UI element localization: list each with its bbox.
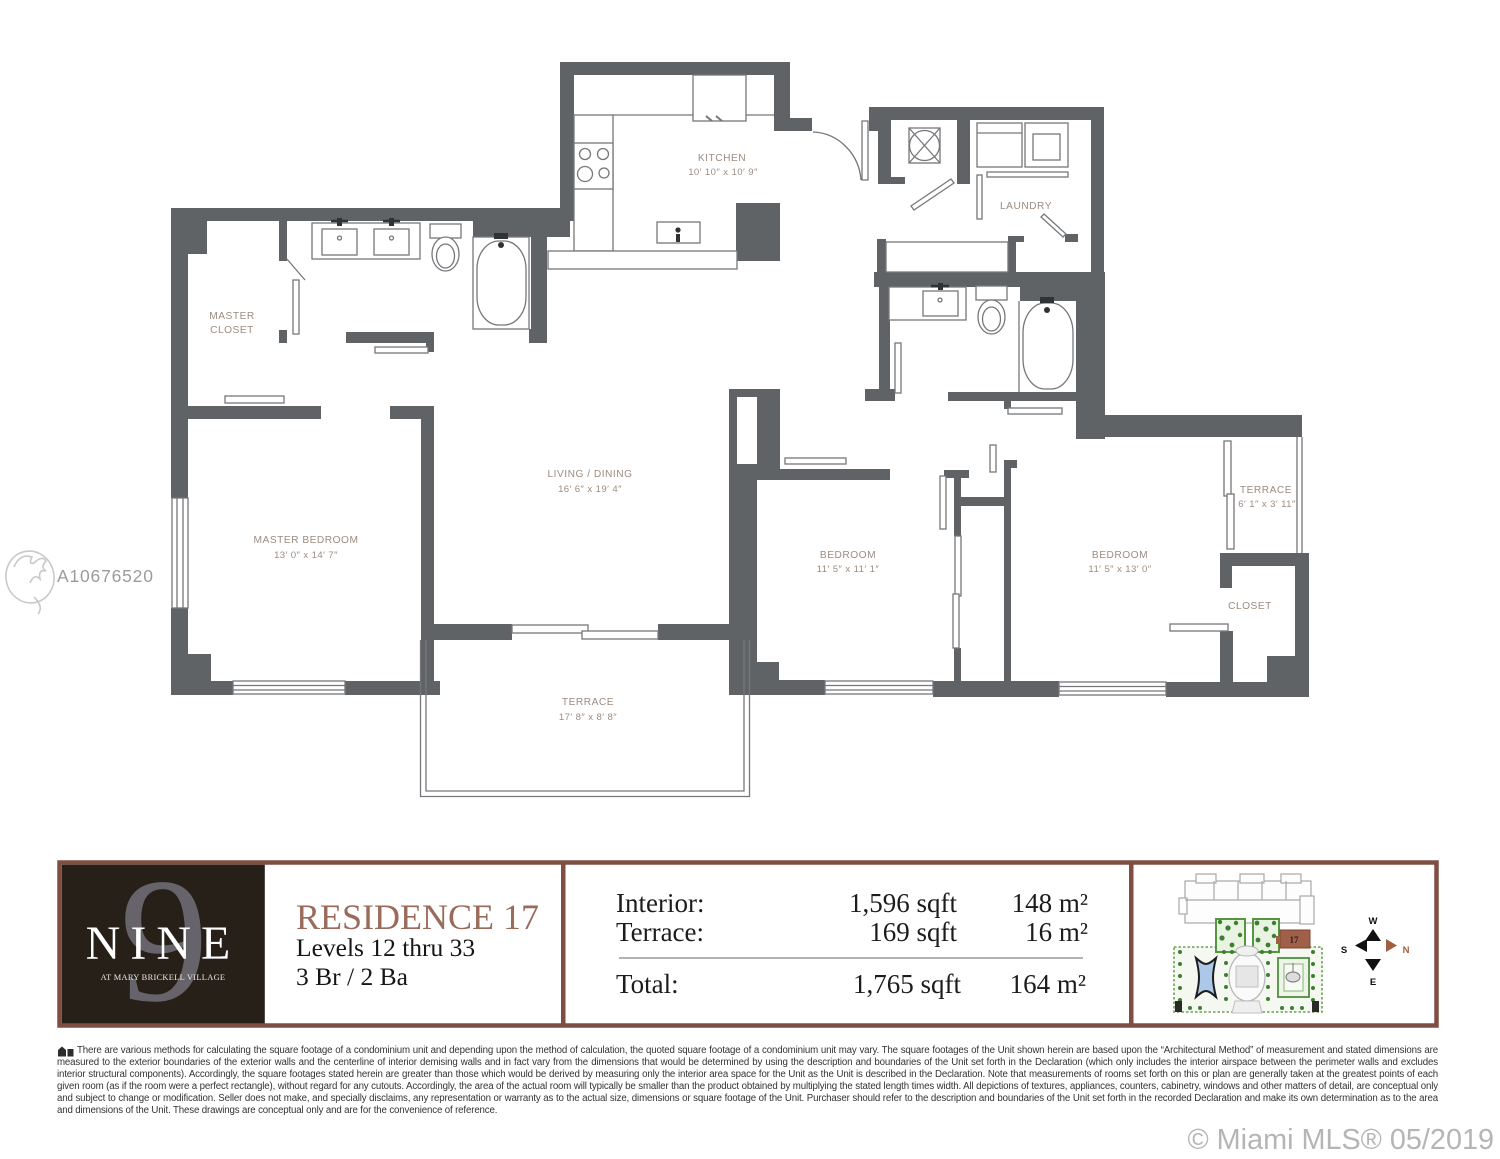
svg-text:Levels 12 thru 33: Levels 12 thru 33 — [296, 933, 475, 962]
svg-text:CLOSET: CLOSET — [210, 325, 254, 336]
svg-text:KITCHEN: KITCHEN — [698, 153, 746, 164]
svg-text:6′ 1″ x 3′ 11″: 6′ 1″ x 3′ 11″ — [1238, 499, 1296, 510]
svg-text:BEDROOM: BEDROOM — [1092, 550, 1148, 561]
svg-text:164 m²: 164 m² — [1010, 969, 1086, 999]
svg-text:RESIDENCE 17: RESIDENCE 17 — [296, 897, 539, 937]
svg-text:17: 17 — [1290, 935, 1300, 945]
svg-text:W: W — [1369, 916, 1378, 927]
svg-text:Interior:: Interior: — [616, 888, 704, 918]
svg-text:17′ 8″ x 8′ 8″: 17′ 8″ x 8′ 8″ — [559, 712, 617, 723]
svg-text:TERRACE: TERRACE — [1240, 485, 1292, 496]
svg-text:CLOSET: CLOSET — [1228, 601, 1272, 612]
svg-text:TERRACE: TERRACE — [562, 697, 614, 708]
svg-text:S: S — [1341, 945, 1347, 956]
svg-text:Terrace:: Terrace: — [616, 917, 704, 947]
svg-text:1,765 sqft: 1,765 sqft — [853, 969, 961, 999]
svg-text:E: E — [1370, 977, 1376, 988]
svg-text:16′ 6″ x 19′ 4″: 16′ 6″ x 19′ 4″ — [558, 484, 622, 495]
svg-text:11′ 5″ x 13′ 0″: 11′ 5″ x 13′ 0″ — [1088, 564, 1151, 575]
svg-text:N: N — [1403, 945, 1410, 956]
svg-text:10′ 10″ x 10′ 9″: 10′ 10″ x 10′ 9″ — [688, 167, 758, 178]
svg-text:3 Br / 2 Ba: 3 Br / 2 Ba — [296, 962, 408, 991]
svg-text:169 sqft: 169 sqft — [869, 917, 957, 947]
svg-text:BEDROOM: BEDROOM — [820, 550, 876, 561]
svg-text:16 m²: 16 m² — [1025, 917, 1088, 947]
svg-text:LAUNDRY: LAUNDRY — [1000, 201, 1052, 212]
svg-text:LIVING / DINING: LIVING / DINING — [547, 469, 632, 480]
svg-text:NINE: NINE — [86, 917, 241, 970]
svg-text:13′ 0″ x 14′ 7″: 13′ 0″ x 14′ 7″ — [274, 550, 338, 561]
svg-text:148 m²: 148 m² — [1012, 888, 1088, 918]
svg-text:MASTER BEDROOM: MASTER BEDROOM — [254, 535, 359, 546]
svg-text:MASTER: MASTER — [209, 311, 254, 322]
svg-text:AT MARY BRICKELL VILLAGE: AT MARY BRICKELL VILLAGE — [101, 973, 226, 982]
svg-text:11′ 5″ x 11′ 1″: 11′ 5″ x 11′ 1″ — [817, 564, 880, 575]
svg-text:1,596 sqft: 1,596 sqft — [849, 888, 957, 918]
svg-text:Total:: Total: — [616, 969, 679, 999]
